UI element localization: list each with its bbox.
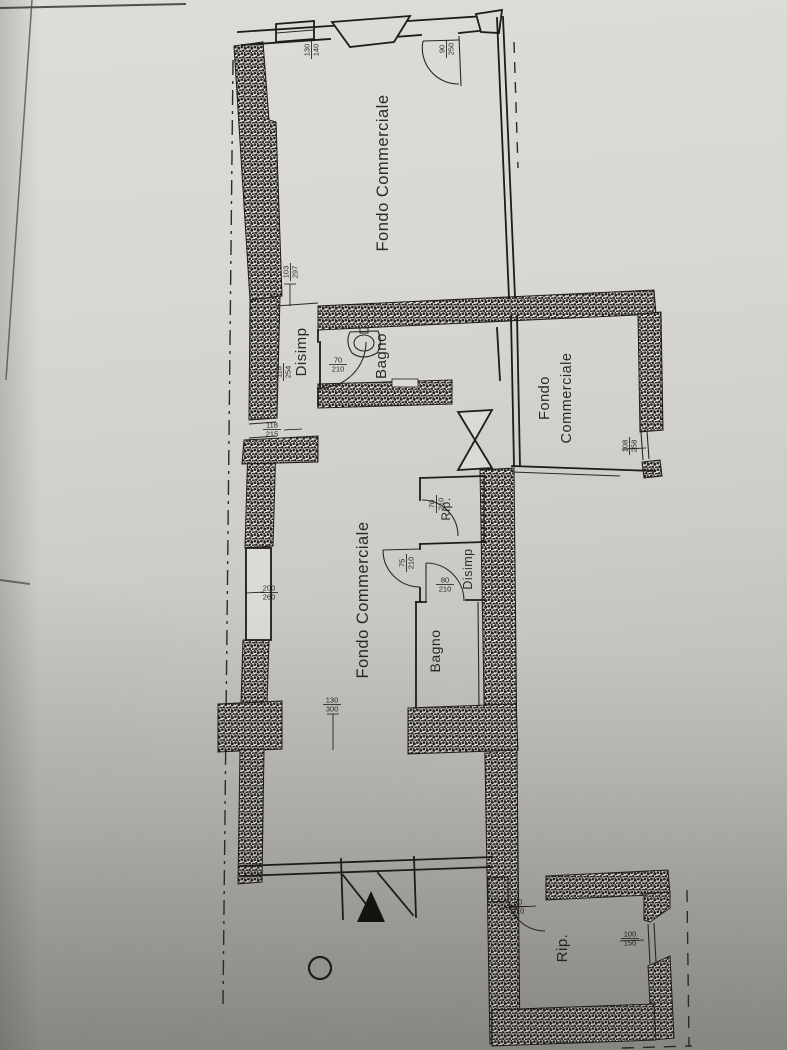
leader-disimp1-top	[284, 284, 296, 306]
svg-text:210: 210	[332, 365, 345, 374]
dim-disimp1-top: 103297	[282, 263, 300, 281]
svg-text:118: 118	[275, 366, 284, 378]
disimp2-door-leaf	[383, 549, 420, 550]
svg-text:260: 260	[263, 593, 276, 602]
floorplan-svg: 90250 130140 103297 118254 70210 118215 …	[0, 0, 787, 1050]
thin-walls	[238, 10, 656, 964]
dim-fondo2-window: 108258	[621, 437, 639, 455]
scan-artifacts	[0, 0, 186, 584]
svg-text:300: 300	[326, 705, 339, 714]
wall-rip2-right-upper	[644, 892, 670, 922]
svg-text:150: 150	[624, 939, 637, 948]
dim-bagno1-door: 70210	[329, 356, 347, 374]
wall-band-top	[318, 290, 656, 330]
svg-text:210: 210	[512, 907, 525, 916]
boundary-line-bottom-right-v	[687, 890, 689, 1046]
svg-text:210: 210	[407, 557, 416, 570]
room-label-fondo-commerciale-2-line1: Fondo	[537, 376, 553, 420]
room-label-bagno-1: Bagno	[373, 333, 390, 379]
toproom-right-wall-b	[503, 17, 515, 297]
entrance-v-right	[378, 873, 413, 915]
page-left-mark	[0, 580, 30, 584]
svg-text:254: 254	[284, 366, 293, 379]
svg-text:80: 80	[514, 898, 522, 907]
rip2-window-b	[654, 923, 656, 963]
leader-left-window1	[284, 429, 302, 430]
boundary-line-bottom-right-h	[622, 1046, 692, 1048]
wall-rip2-top-left	[488, 877, 508, 902]
wall-left-mid-c	[241, 640, 269, 704]
dim-left-window1: 118215	[263, 421, 281, 439]
boundary-lines	[223, 42, 692, 1048]
svg-text:90: 90	[438, 45, 447, 53]
svg-text:130: 130	[326, 696, 339, 705]
svg-text:70: 70	[334, 356, 342, 365]
wall-left-upper	[234, 42, 282, 300]
room-labels: Fondo Commerciale Disimp Bagno Fondo Com…	[293, 94, 575, 962]
scanned-floorplan-photo: 90250 130140 103297 118254 70210 118215 …	[0, 0, 787, 1050]
dim-rip2-window: 100150	[621, 930, 639, 948]
wall-under-subrooms	[408, 704, 518, 754]
dim-disimp2-door: 75210	[398, 554, 416, 572]
rip1-bottom-wall	[420, 542, 484, 544]
rip1-top-wall	[420, 476, 484, 478]
page-top-line	[0, 4, 186, 8]
svg-text:130: 130	[303, 44, 312, 57]
svg-text:108: 108	[621, 440, 630, 453]
storefront-recess	[332, 16, 410, 47]
svg-text:140: 140	[312, 44, 321, 57]
svg-text:103: 103	[282, 266, 291, 279]
fondo2-window-b	[647, 431, 649, 459]
room-label-fondo-commerciale-3: Fondo Commerciale	[354, 521, 372, 678]
svg-text:215: 215	[266, 430, 279, 439]
dimension-labels: 90250 130140 103297 118254 70210 118215 …	[260, 40, 639, 948]
double-door-leaf-top	[458, 410, 492, 440]
wall-left-pier	[218, 701, 282, 752]
boundary-line-top-right	[514, 42, 518, 168]
dim-shop-window: 130140	[303, 41, 321, 59]
leader-mid-opening	[327, 714, 339, 750]
entrance-post-left	[341, 859, 343, 919]
room-label-fondo-commerciale-1: Fondo Commerciale	[374, 94, 392, 251]
toproom-door-leaf	[423, 40, 459, 41]
fondo2-bottom-wall-b	[512, 472, 620, 476]
svg-text:80: 80	[441, 576, 449, 585]
fondo2-left-wall-a	[511, 316, 514, 466]
double-door-leaf-bottom	[458, 440, 492, 470]
svg-text:210: 210	[439, 585, 452, 594]
boundary-line-left	[223, 60, 233, 1004]
sink-tap	[360, 328, 368, 333]
bagno2-right-wall	[478, 602, 479, 706]
wall-disimp1-bottom	[242, 436, 318, 464]
svg-text:297: 297	[291, 266, 300, 279]
dim-left-window2: 200260	[260, 584, 278, 602]
wall-right-vertical	[480, 468, 520, 1044]
svg-text:75: 75	[398, 559, 407, 567]
fondo2-window-a	[641, 432, 643, 460]
dim-mid-opening: 130300	[323, 696, 341, 714]
disimp1-top-sill	[276, 303, 318, 306]
dim-bagno2-door: 80210	[436, 576, 454, 594]
svg-text:118: 118	[266, 421, 278, 430]
bagno1-end-wall	[497, 328, 500, 380]
wall-left-lower	[238, 749, 264, 884]
entrance-arrow	[357, 891, 385, 922]
svg-text:100: 100	[624, 930, 637, 939]
wall-left-mid-a	[249, 296, 280, 420]
room-label-disimp-2: Disimp	[461, 548, 475, 589]
bagno1-threshold	[392, 379, 418, 387]
toproom-door-jamb	[459, 36, 461, 86]
room-label-fondo-commerciale-2-line2: Commerciale	[559, 353, 575, 444]
toproom-right-wall-a	[497, 18, 509, 298]
room-label-disimp-1: Disimp	[293, 328, 310, 377]
svg-text:250: 250	[447, 43, 456, 56]
storefront-bottom-a	[240, 857, 492, 866]
wall-rip2-bottom	[492, 1004, 656, 1046]
svg-text:70: 70	[428, 500, 437, 508]
column-circle	[309, 957, 331, 979]
fondo2-left-wall-b	[517, 316, 520, 466]
wall-fondo2-right	[638, 312, 663, 432]
rip2-window-a	[648, 924, 650, 964]
storefront-bottom-b	[240, 867, 492, 876]
entrance-post-right	[414, 857, 416, 917]
shop-window-mullion	[276, 30, 314, 33]
room-label-rip-1: Rip.	[439, 497, 453, 520]
sink-basin	[354, 335, 374, 351]
svg-text:200: 200	[263, 584, 276, 593]
wall-fondo2-corner	[642, 460, 662, 478]
room-label-bagno-2: Bagno	[427, 630, 443, 673]
dim-top-door: 90250	[438, 40, 456, 58]
page-edge-line	[6, 0, 32, 380]
svg-text:258: 258	[630, 440, 639, 453]
room-label-rip-2: Rip.	[554, 934, 571, 963]
fondo2-bottom-wall-a	[512, 466, 654, 471]
